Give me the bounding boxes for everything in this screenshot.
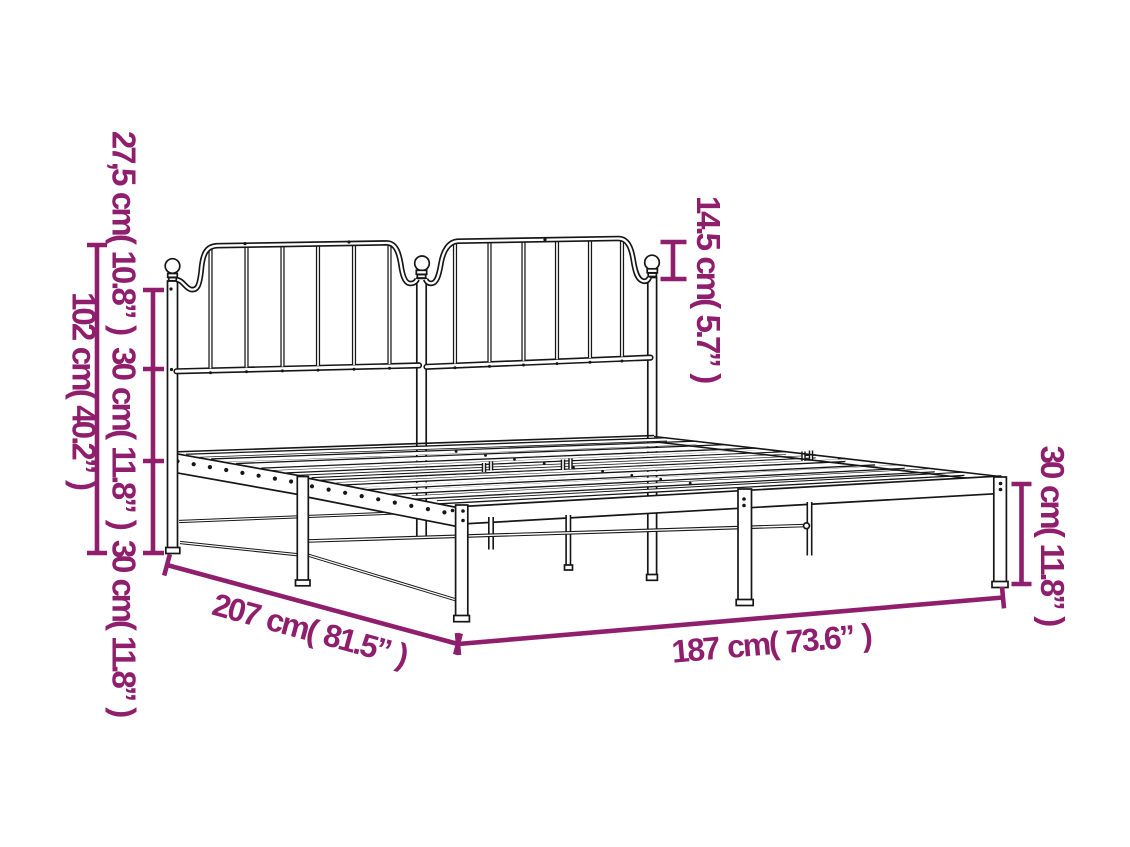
svg-text:102 cm( 40.2” ): 102 cm( 40.2” ) [65,292,102,490]
svg-text:30 cm( 11.8” ): 30 cm( 11.8” ) [105,540,142,717]
svg-text:14.5 cm( 5.7” ): 14.5 cm( 5.7” ) [690,196,727,383]
svg-text:27,5 cm( 10.8” ): 27,5 cm( 10.8” ) [105,131,142,335]
svg-text:30 cm( 11.8” ): 30 cm( 11.8” ) [105,347,142,530]
svg-text:30 cm( 11.8” ): 30 cm( 11.8” ) [1034,446,1071,627]
